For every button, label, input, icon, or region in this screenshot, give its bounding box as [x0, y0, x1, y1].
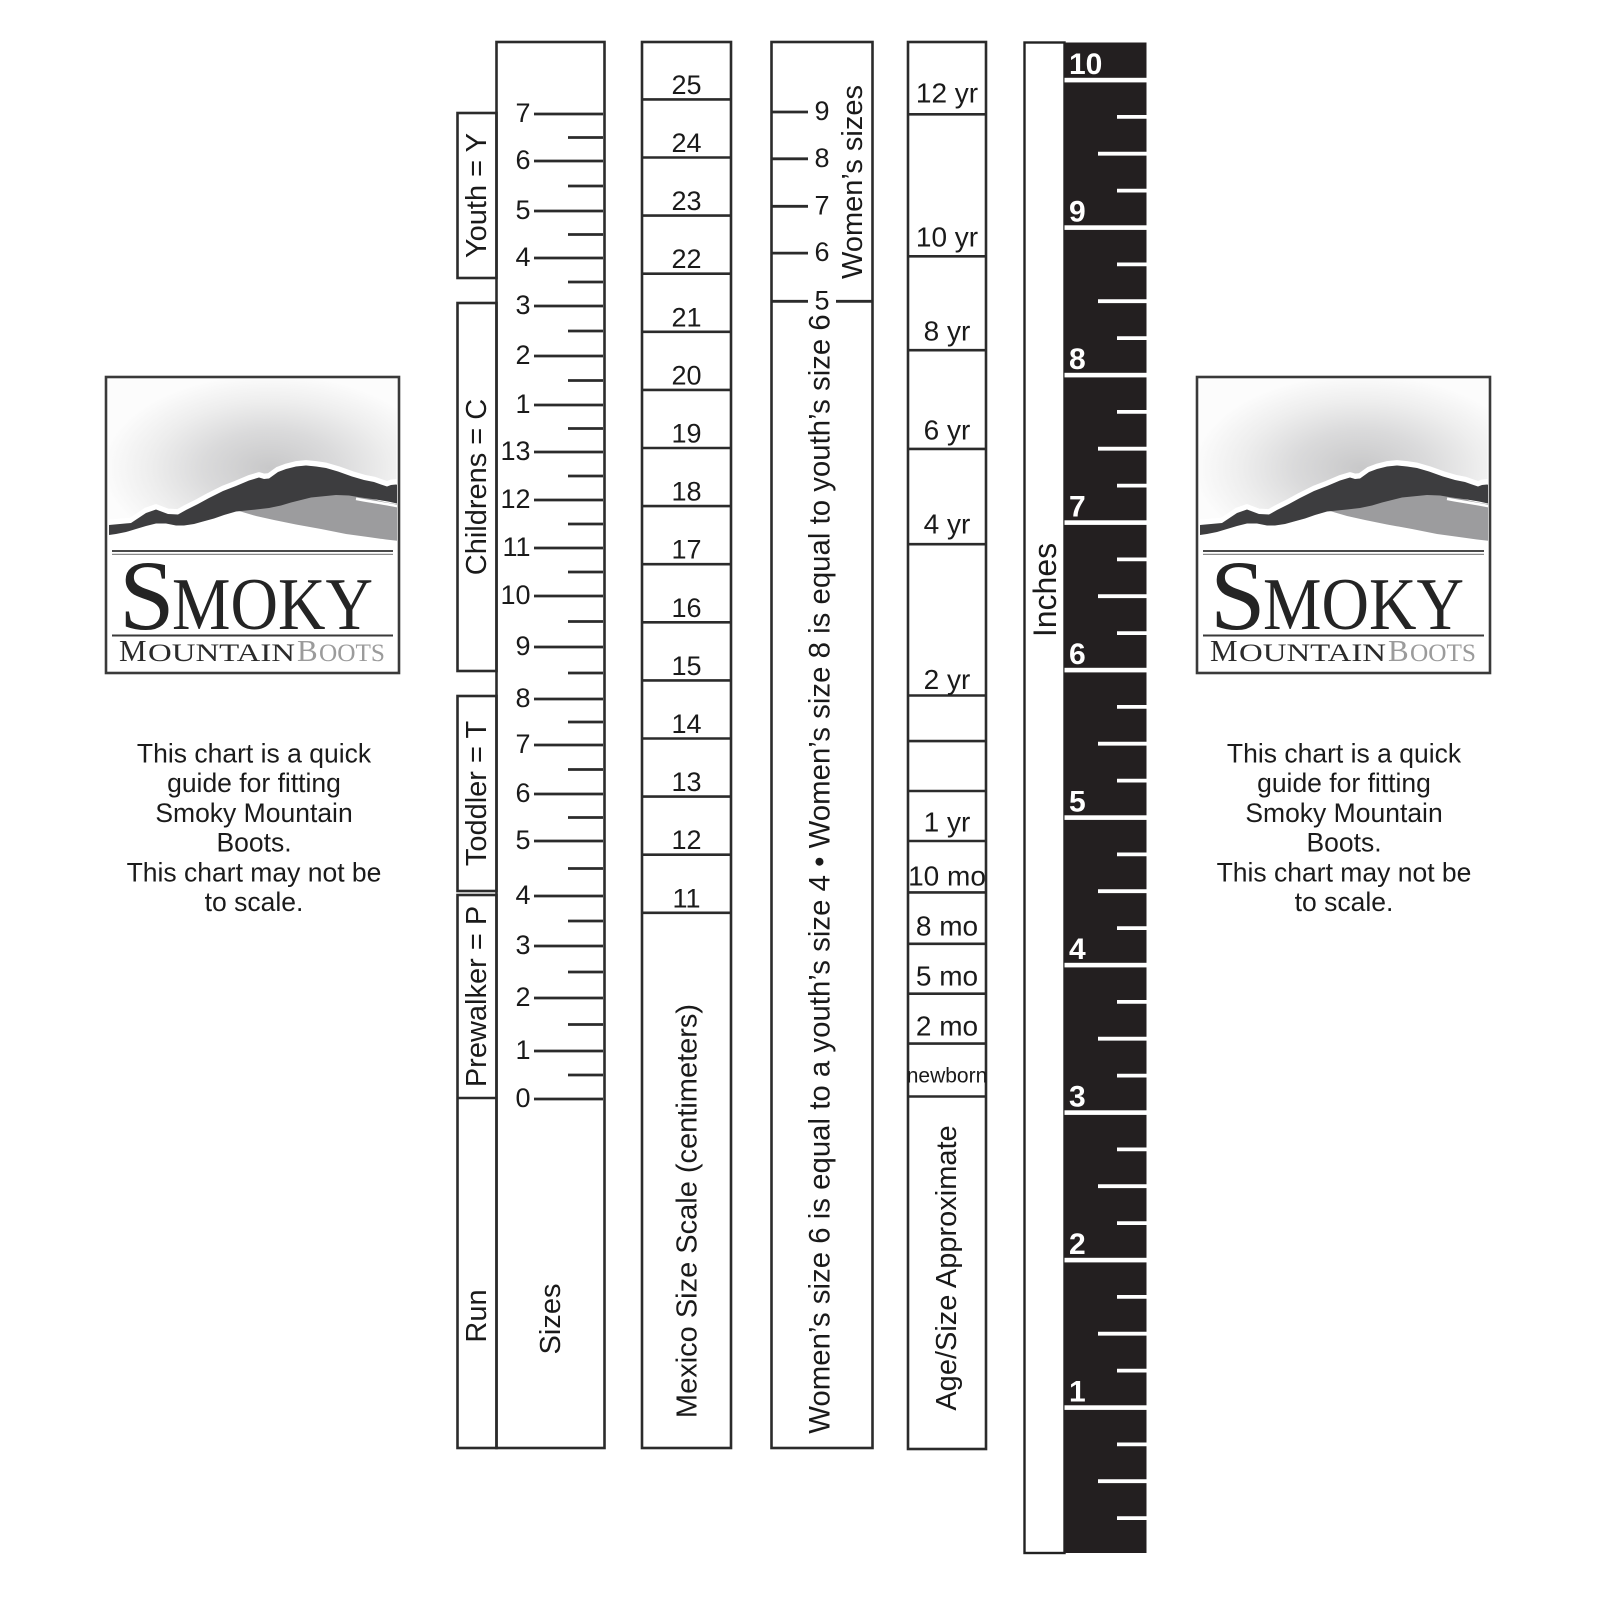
svg-text:21: 21 [671, 302, 701, 332]
svg-text:8 yr: 8 yr [924, 316, 971, 347]
svg-text:Age/Size Approximate: Age/Size Approximate [931, 1125, 963, 1410]
svg-text:5: 5 [814, 285, 829, 315]
svg-text:Childrens = C: Childrens = C [461, 399, 493, 576]
svg-text:6: 6 [515, 145, 530, 175]
svg-text:2: 2 [515, 982, 530, 1012]
svg-text:3: 3 [515, 290, 530, 320]
svg-text:5: 5 [1069, 786, 1086, 819]
svg-text:1 yr: 1 yr [924, 807, 971, 838]
svg-text:4: 4 [1069, 933, 1086, 966]
svg-text:7: 7 [515, 98, 530, 128]
svg-text:18: 18 [671, 477, 701, 507]
svg-text:10: 10 [1069, 48, 1102, 81]
svg-text:12: 12 [500, 484, 530, 514]
svg-text:4 yr: 4 yr [924, 509, 971, 540]
svg-text:9: 9 [1069, 196, 1086, 229]
svg-text:Women’s size 6 is equal to a y: Women’s size 6 is equal to a youth’s siz… [804, 314, 837, 1434]
svg-text:Toddler = T: Toddler = T [461, 721, 493, 867]
svg-text:23: 23 [671, 186, 701, 216]
svg-text:15: 15 [671, 651, 701, 681]
svg-text:Mexico Size Scale (centimeters: Mexico Size Scale (centimeters) [672, 1004, 704, 1418]
svg-text:8: 8 [814, 143, 829, 173]
svg-text:7: 7 [1069, 491, 1086, 524]
svg-text:8: 8 [515, 683, 530, 713]
svg-text:25: 25 [671, 70, 701, 100]
svg-text:Youth = Y: Youth = Y [461, 133, 493, 258]
svg-text:11: 11 [502, 532, 530, 562]
svg-text:Inches: Inches [1027, 543, 1063, 637]
svg-text:2: 2 [1069, 1228, 1086, 1261]
svg-text:1: 1 [515, 389, 530, 419]
svg-text:13: 13 [671, 767, 701, 797]
svg-text:9: 9 [814, 96, 829, 126]
svg-text:7: 7 [814, 190, 829, 220]
svg-text:3: 3 [1069, 1081, 1086, 1114]
svg-text:9: 9 [515, 631, 530, 661]
svg-text:10 mo: 10 mo [908, 861, 986, 892]
svg-text:17: 17 [671, 535, 701, 565]
svg-text:13: 13 [500, 436, 530, 466]
svg-text:6: 6 [1069, 638, 1086, 671]
svg-text:5: 5 [515, 825, 530, 855]
svg-text:Women’s sizes: Women’s sizes [837, 85, 869, 279]
svg-text:1: 1 [515, 1035, 530, 1065]
svg-text:2: 2 [515, 340, 530, 370]
svg-text:0: 0 [515, 1083, 530, 1113]
svg-text:4: 4 [515, 242, 530, 272]
svg-text:5 mo: 5 mo [916, 961, 978, 992]
svg-text:6 yr: 6 yr [924, 415, 971, 446]
svg-text:8 mo: 8 mo [916, 911, 978, 942]
svg-text:8: 8 [1069, 343, 1086, 376]
svg-text:6: 6 [515, 778, 530, 808]
svg-text:4: 4 [515, 880, 530, 910]
svg-text:20: 20 [671, 360, 701, 390]
svg-text:Run: Run [461, 1289, 493, 1342]
svg-text:2 yr: 2 yr [924, 664, 971, 695]
svg-text:6: 6 [814, 237, 829, 267]
svg-text:24: 24 [671, 128, 701, 158]
svg-text:12: 12 [671, 825, 701, 855]
svg-text:5: 5 [515, 195, 530, 225]
svg-text:7: 7 [515, 729, 530, 759]
svg-text:10 yr: 10 yr [916, 222, 978, 253]
svg-text:10: 10 [500, 580, 530, 610]
svg-text:Prewalker = P: Prewalker = P [461, 906, 493, 1087]
svg-text:11: 11 [672, 883, 700, 913]
svg-text:1: 1 [1069, 1376, 1086, 1409]
svg-text:2 mo: 2 mo [916, 1011, 978, 1042]
svg-text:16: 16 [671, 593, 701, 623]
svg-text:12 yr: 12 yr [916, 78, 978, 109]
svg-text:19: 19 [671, 419, 701, 449]
svg-text:newborn: newborn [907, 1065, 988, 1088]
svg-text:Sizes: Sizes [535, 1284, 567, 1355]
svg-text:22: 22 [671, 244, 701, 274]
svg-text:3: 3 [515, 930, 530, 960]
svg-text:14: 14 [671, 709, 701, 739]
